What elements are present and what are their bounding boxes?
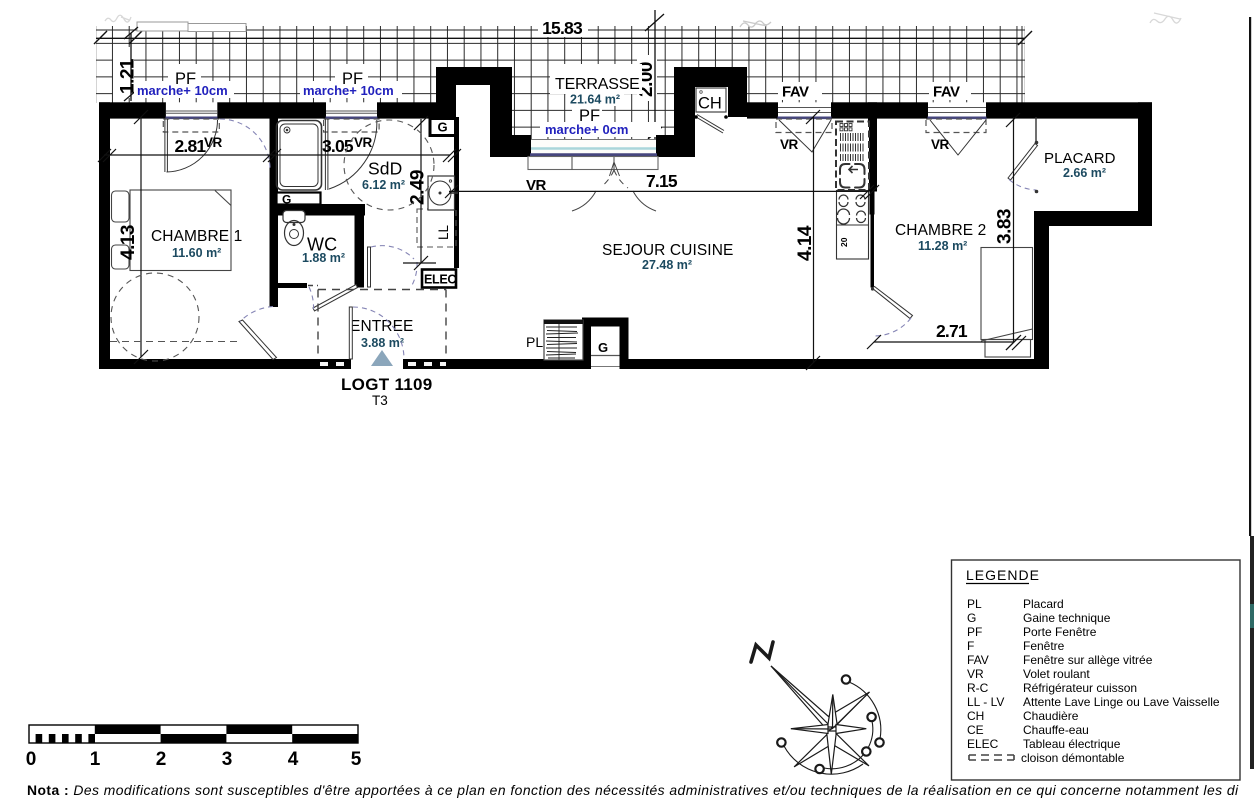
svg-text:Porte Fenêtre: Porte Fenêtre xyxy=(1023,625,1097,639)
svg-text:SdD: SdD xyxy=(368,159,402,179)
svg-text:CHAMBRE 1: CHAMBRE 1 xyxy=(151,228,242,245)
svg-text:FAV: FAV xyxy=(967,653,989,667)
svg-text:3.88 m²: 3.88 m² xyxy=(361,336,404,350)
svg-text:2.71: 2.71 xyxy=(936,321,968,341)
svg-text:Fenêtre sur allège vitrée: Fenêtre sur allège vitrée xyxy=(1023,653,1153,667)
svg-text:CH: CH xyxy=(967,709,984,723)
svg-text:Fenêtre: Fenêtre xyxy=(1023,639,1065,653)
svg-text:6.12 m²: 6.12 m² xyxy=(362,178,405,192)
svg-text:1: 1 xyxy=(90,749,101,770)
svg-text:4.13: 4.13 xyxy=(118,225,139,260)
svg-text:VR: VR xyxy=(526,177,547,194)
svg-text:marche+ 10cm: marche+ 10cm xyxy=(303,83,394,98)
svg-text:LEGENDE: LEGENDE xyxy=(966,567,1040,583)
svg-text:TERRASSE: TERRASSE xyxy=(555,76,640,93)
svg-text:3.05: 3.05 xyxy=(322,136,354,156)
svg-text:Réfrigérateur cuisson: Réfrigérateur cuisson xyxy=(1023,681,1137,695)
svg-text:4.14: 4.14 xyxy=(795,225,816,261)
svg-text:11.60 m²: 11.60 m² xyxy=(172,246,221,260)
svg-text:PLACARD: PLACARD xyxy=(1044,150,1116,167)
svg-text:2.81: 2.81 xyxy=(175,136,207,156)
svg-text:G: G xyxy=(282,193,291,207)
svg-text:marche+ 10cm: marche+ 10cm xyxy=(137,83,228,98)
svg-text:Gaine technique: Gaine technique xyxy=(1023,611,1111,625)
svg-text:CE: CE xyxy=(967,723,984,737)
svg-text:3: 3 xyxy=(222,749,233,770)
svg-text:2.66 m²: 2.66 m² xyxy=(1063,166,1106,180)
svg-text:11.28 m²: 11.28 m² xyxy=(918,239,967,253)
svg-text:PL: PL xyxy=(967,597,982,611)
svg-text:CH: CH xyxy=(698,95,722,113)
svg-text:LL: LL xyxy=(436,224,451,240)
svg-text:FAV: FAV xyxy=(933,84,960,101)
svg-text:VR: VR xyxy=(931,137,950,152)
svg-text:PL: PL xyxy=(526,334,543,350)
svg-text:F: F xyxy=(967,639,974,653)
svg-text:0: 0 xyxy=(26,749,37,770)
svg-text:Tableau électrique: Tableau électrique xyxy=(1023,737,1121,751)
svg-text:G: G xyxy=(598,340,608,355)
svg-text:SEJOUR CUISINE: SEJOUR CUISINE xyxy=(602,242,733,259)
svg-text:Chauffe-eau: Chauffe-eau xyxy=(1023,723,1089,737)
svg-text:7.15: 7.15 xyxy=(646,171,678,191)
svg-text:LOGT 1109: LOGT 1109 xyxy=(341,375,433,394)
svg-text:ENTREE: ENTREE xyxy=(350,318,413,335)
svg-text:20: 20 xyxy=(839,237,849,247)
svg-text:4: 4 xyxy=(288,749,299,770)
svg-text:PF: PF xyxy=(967,625,982,639)
svg-text:5: 5 xyxy=(351,749,362,770)
svg-text:LL - LV: LL - LV xyxy=(967,695,1004,709)
svg-text:Nota : Des modifications sont: Nota : Des modifications sont susceptibl… xyxy=(27,782,1239,798)
svg-text:2.49: 2.49 xyxy=(408,170,429,205)
svg-text:G: G xyxy=(967,611,976,625)
svg-text:marche+ 0cm: marche+ 0cm xyxy=(545,122,628,137)
svg-text:VR: VR xyxy=(780,137,799,152)
svg-text:T3: T3 xyxy=(372,393,388,408)
svg-text:VR: VR xyxy=(354,135,373,150)
svg-text:1.88 m²: 1.88 m² xyxy=(302,251,345,265)
svg-text:Chaudière: Chaudière xyxy=(1023,709,1079,723)
svg-text:VR: VR xyxy=(204,135,223,150)
svg-text:R-C: R-C xyxy=(967,681,989,695)
svg-text:FAV: FAV xyxy=(782,84,809,101)
svg-text:3.83: 3.83 xyxy=(995,209,1016,244)
svg-text:Attente Lave Linge ou Lave Vai: Attente Lave Linge ou Lave Vaisselle xyxy=(1023,695,1220,709)
svg-text:ELEC: ELEC xyxy=(967,737,999,751)
svg-text:Volet roulant: Volet roulant xyxy=(1023,667,1090,681)
svg-text:21.64 m²: 21.64 m² xyxy=(570,93,620,107)
svg-text:cloison démontable: cloison démontable xyxy=(1021,751,1125,765)
svg-text:15.83: 15.83 xyxy=(542,18,583,38)
svg-text:G: G xyxy=(438,120,448,135)
svg-text:CHAMBRE 2: CHAMBRE 2 xyxy=(895,222,986,239)
svg-text:VR: VR xyxy=(967,667,984,681)
svg-text:Placard: Placard xyxy=(1023,597,1064,611)
svg-text:27.48 m²: 27.48 m² xyxy=(642,258,692,272)
svg-text:2: 2 xyxy=(156,749,167,770)
svg-text:ELEC: ELEC xyxy=(424,273,456,287)
